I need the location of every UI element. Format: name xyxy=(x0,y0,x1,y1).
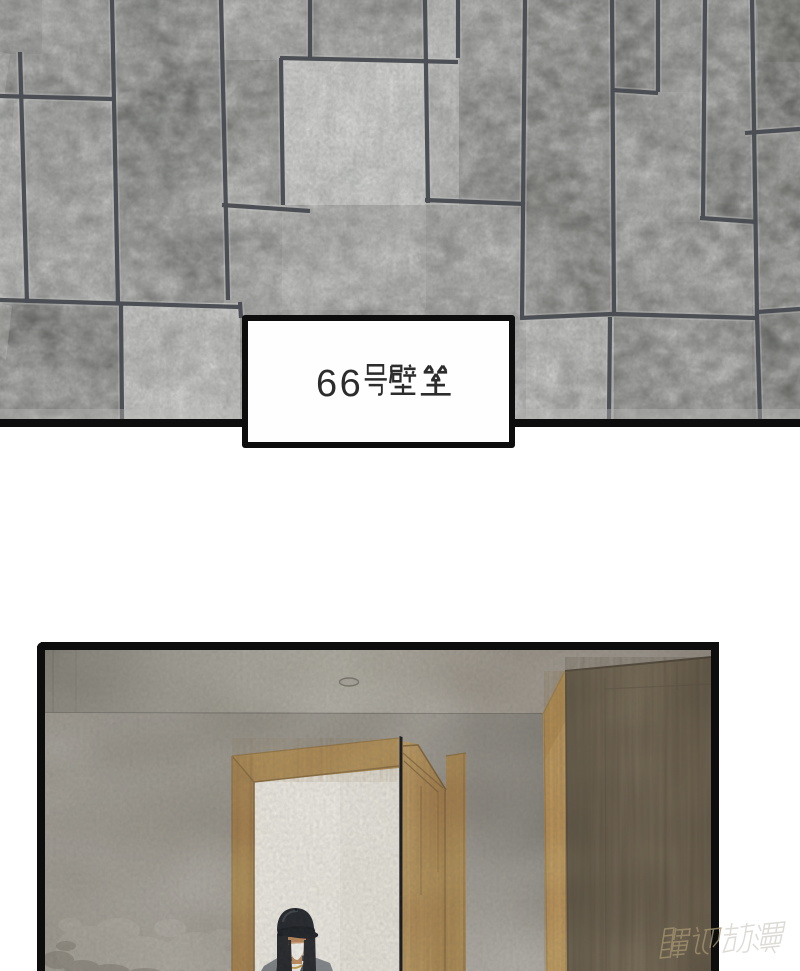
svg-text:66: 66 xyxy=(316,363,363,405)
